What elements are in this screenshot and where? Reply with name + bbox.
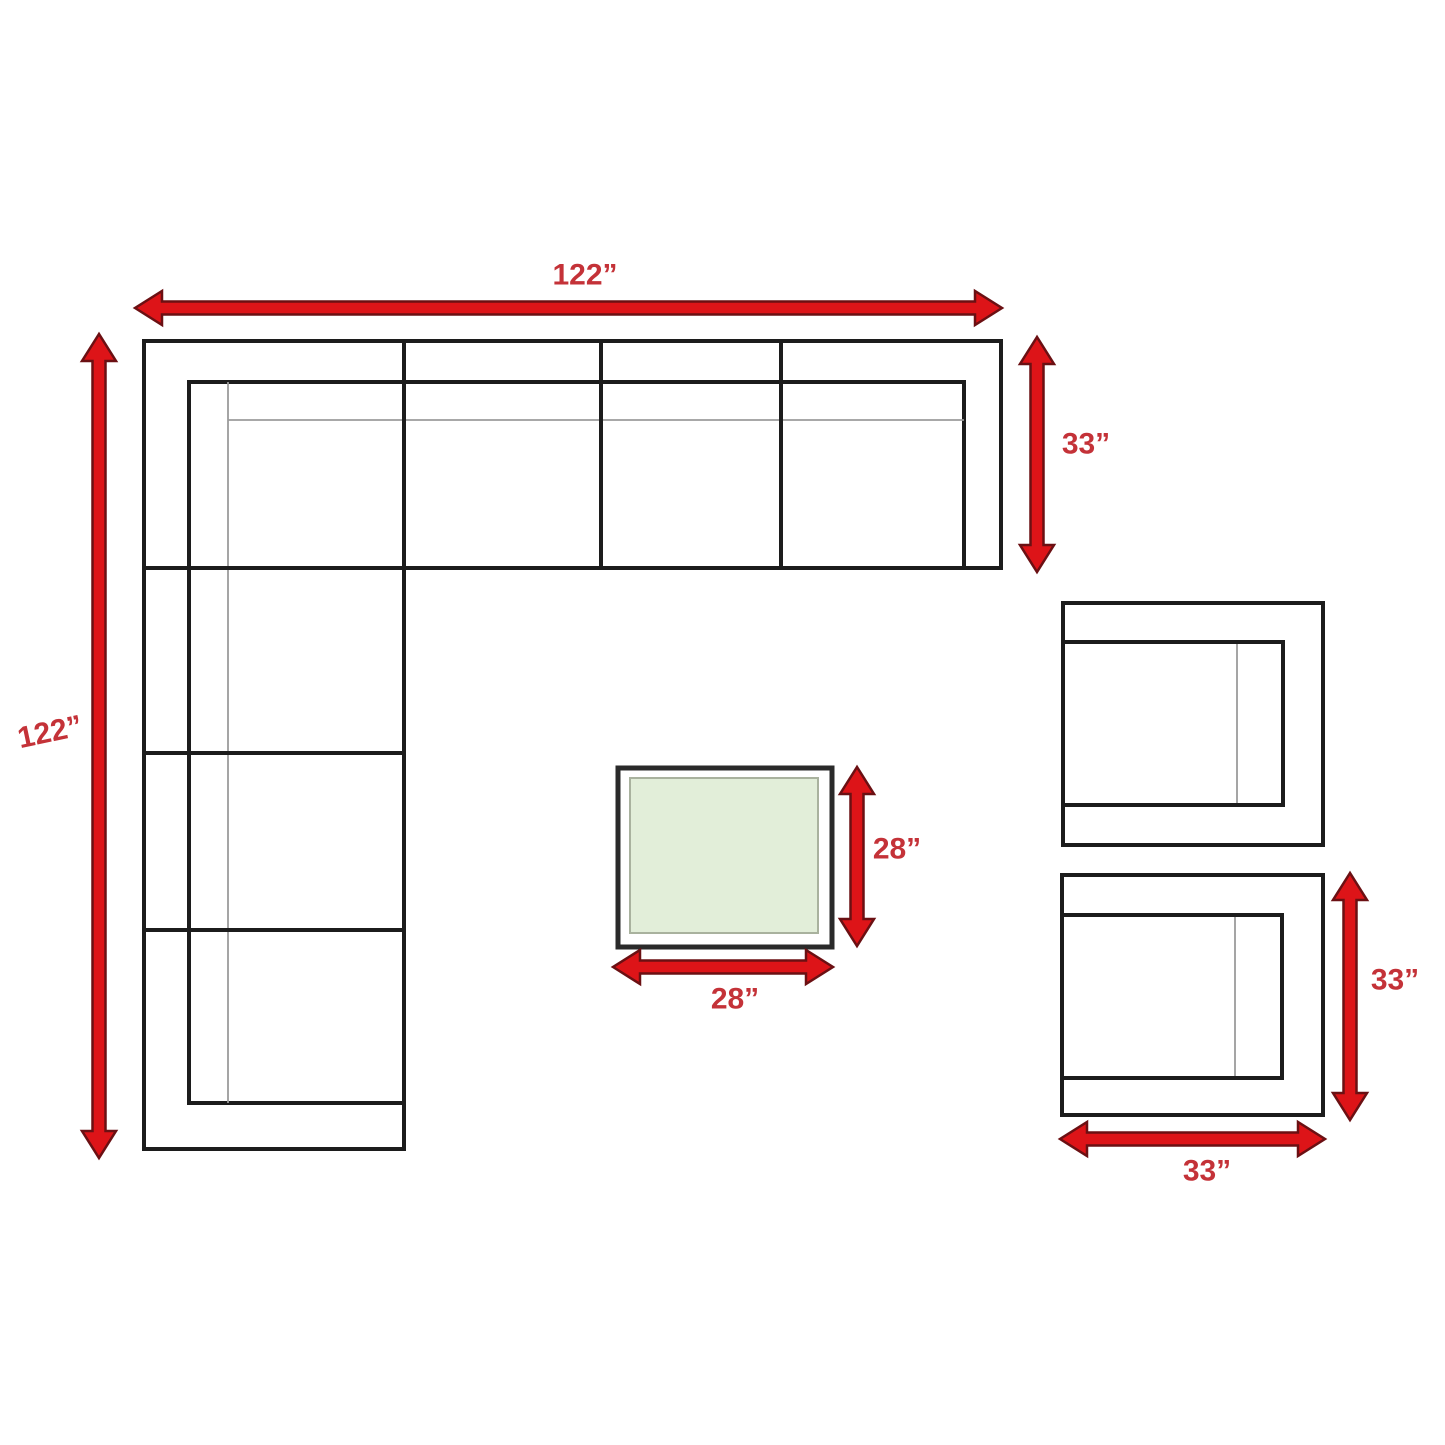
dimension-arrow-chair-width bbox=[1060, 1122, 1325, 1156]
furniture-dimension-diagram: 122”122”33”28”28”33”33” bbox=[0, 0, 1445, 1445]
coffee-table bbox=[618, 768, 832, 947]
dimension-callout-table-width: 28” bbox=[613, 950, 833, 1016]
dimension-label-sofa-width: 122” bbox=[552, 259, 617, 292]
floorplan-canvas: 122”122”33”28”28”33”33” bbox=[0, 0, 1445, 1445]
dimension-callout-chair-depth: 33” bbox=[1333, 873, 1419, 1120]
dimension-label-sofa-height: 122” bbox=[15, 709, 86, 755]
dimension-label-sofa-depth: 33” bbox=[1062, 428, 1110, 461]
dimension-callout-sofa-height: 122” bbox=[15, 334, 116, 1158]
sofa-outline bbox=[144, 341, 1001, 1149]
armchair-1 bbox=[1063, 603, 1323, 845]
dimension-label-chair-depth: 33” bbox=[1371, 964, 1419, 997]
armchair-2 bbox=[1062, 875, 1323, 1115]
sectional-sofa bbox=[144, 341, 1001, 1149]
dimension-label-chair-width: 33” bbox=[1183, 1155, 1231, 1188]
coffee-table-glass bbox=[630, 778, 818, 933]
dimension-callout-table-depth: 28” bbox=[840, 767, 921, 946]
dimension-label-table-width: 28” bbox=[711, 983, 759, 1016]
dimension-arrow-table-depth bbox=[840, 767, 874, 946]
armchair-seat bbox=[1063, 642, 1283, 805]
armchair-seat bbox=[1062, 915, 1282, 1078]
dimension-arrow-sofa-depth bbox=[1020, 337, 1054, 572]
dimension-arrow-sofa-width bbox=[135, 291, 1002, 325]
dimension-arrow-chair-depth bbox=[1333, 873, 1367, 1120]
dimension-label-table-depth: 28” bbox=[873, 833, 921, 866]
dimension-arrow-sofa-height bbox=[82, 334, 116, 1158]
dimension-arrow-table-width bbox=[613, 950, 833, 984]
dimension-callout-sofa-depth: 33” bbox=[1020, 337, 1110, 572]
dimension-callout-sofa-width: 122” bbox=[135, 259, 1002, 326]
dimension-callout-chair-width: 33” bbox=[1060, 1122, 1325, 1188]
